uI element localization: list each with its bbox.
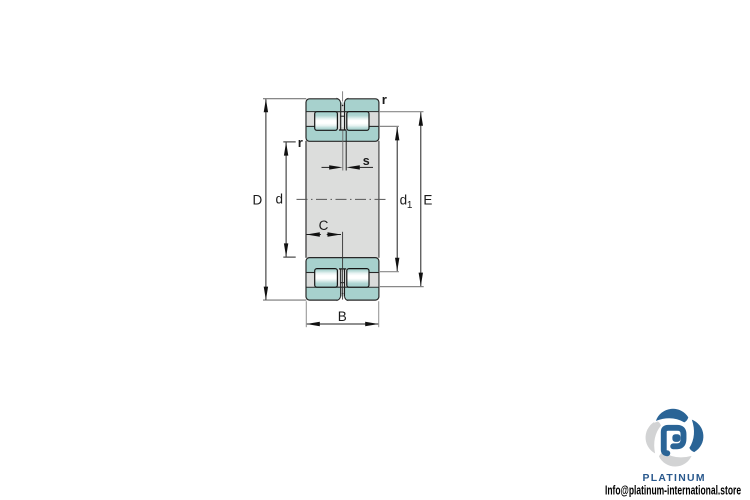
svg-text:B: B [338, 309, 347, 324]
svg-text:Info@platinum-international.st: Info@platinum-international.store [605, 484, 741, 498]
svg-text:E: E [423, 193, 432, 208]
svg-text:d: d [276, 192, 284, 207]
svg-text:r: r [382, 92, 387, 107]
svg-text:1: 1 [407, 200, 413, 211]
svg-text:r: r [298, 135, 303, 150]
svg-text:C: C [319, 218, 329, 233]
svg-text:D: D [253, 192, 263, 207]
svg-text:PLATINUM: PLATINUM [643, 473, 706, 484]
svg-text:s: s [363, 154, 370, 168]
